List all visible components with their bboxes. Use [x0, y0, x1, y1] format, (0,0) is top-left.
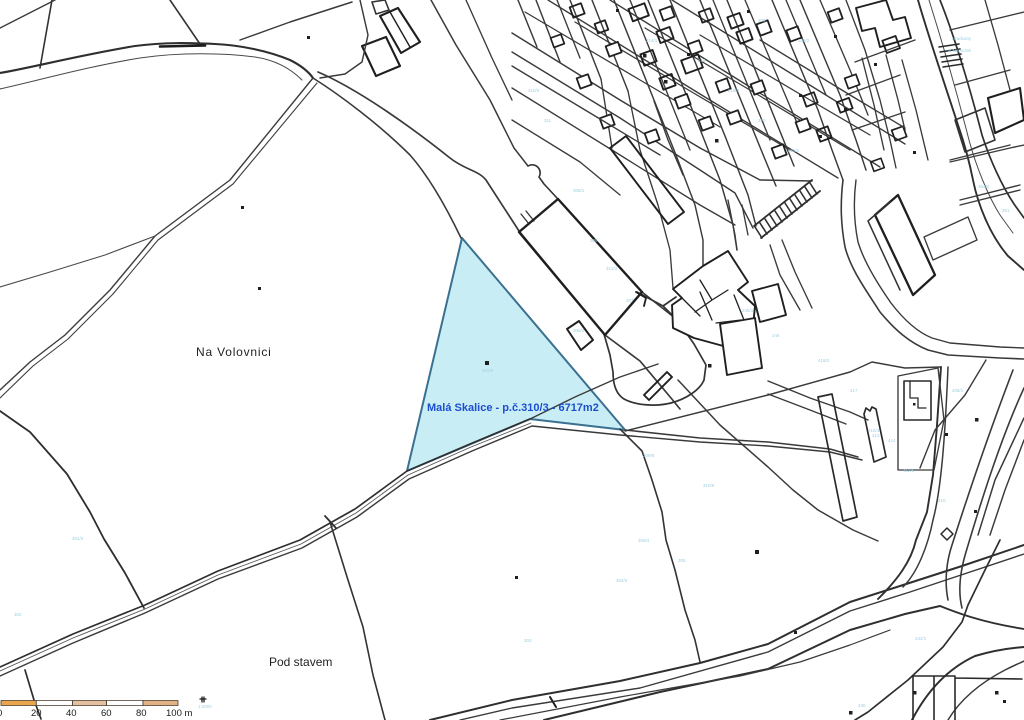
svg-text:413: 413 — [872, 433, 880, 438]
svg-text:302: 302 — [14, 612, 22, 617]
svg-text:0: 0 — [0, 708, 2, 719]
svg-text:417: 417 — [850, 388, 858, 393]
svg-text:312/4: 312/4 — [606, 266, 618, 271]
svg-text:208/2: 208/2 — [798, 38, 810, 43]
svg-text:305: 305 — [678, 558, 686, 563]
svg-text:Pod stavem: Pod stavem — [269, 655, 332, 669]
svg-text:209: 209 — [758, 18, 766, 23]
svg-text:222/1: 222/1 — [788, 148, 800, 153]
svg-text:20: 20 — [31, 708, 42, 719]
svg-text:308/1: 308/1 — [573, 188, 585, 193]
svg-text:309/8: 309/8 — [643, 453, 655, 458]
svg-text:310/3: 310/3 — [482, 368, 494, 373]
svg-text:304/2: 304/2 — [616, 578, 628, 583]
svg-text:216: 216 — [698, 58, 706, 63]
svg-text:307: 307 — [626, 298, 634, 303]
svg-text:Na Volovnici: Na Volovnici — [196, 345, 272, 359]
svg-text:303: 303 — [524, 638, 532, 643]
svg-text:80: 80 — [136, 708, 147, 719]
svg-text:418/2: 418/2 — [818, 358, 830, 363]
svg-text:432/1: 432/1 — [915, 636, 927, 641]
svg-text:408/1: 408/1 — [952, 388, 964, 393]
svg-text:1:2000: 1:2000 — [198, 704, 212, 709]
svg-text:60: 60 — [101, 708, 112, 719]
svg-text:310/2: 310/2 — [528, 88, 540, 93]
svg-text:412/5: 412/5 — [903, 468, 915, 473]
svg-text:218/3: 218/3 — [728, 88, 740, 93]
svg-text:100 m: 100 m — [166, 708, 192, 719]
svg-text:40: 40 — [66, 708, 77, 719]
svg-text:246: 246 — [772, 333, 780, 338]
svg-text:351: 351 — [1002, 208, 1010, 213]
svg-text:354/2: 354/2 — [978, 184, 990, 189]
svg-text:301/2: 301/2 — [72, 536, 84, 541]
svg-text:311: 311 — [544, 118, 552, 123]
svg-text:410: 410 — [938, 498, 946, 503]
svg-text:414: 414 — [888, 438, 896, 443]
svg-text:430: 430 — [858, 703, 866, 708]
svg-text:310/9: 310/9 — [703, 483, 715, 488]
svg-text:Malá Skalice - p.č.310/3 - 671: Malá Skalice - p.č.310/3 - 6717m2 — [427, 402, 599, 414]
svg-text:306/2: 306/2 — [573, 328, 585, 333]
svg-text:220: 220 — [758, 118, 766, 123]
svg-text:214/1: 214/1 — [646, 38, 658, 43]
svg-text:Hradcany: Hradcany — [952, 36, 972, 41]
svg-text:N Nemcstin: N Nemcstin — [948, 48, 972, 53]
svg-text:309: 309 — [590, 238, 598, 243]
svg-text:245/1: 245/1 — [742, 308, 754, 313]
svg-text:306/4: 306/4 — [638, 538, 650, 543]
